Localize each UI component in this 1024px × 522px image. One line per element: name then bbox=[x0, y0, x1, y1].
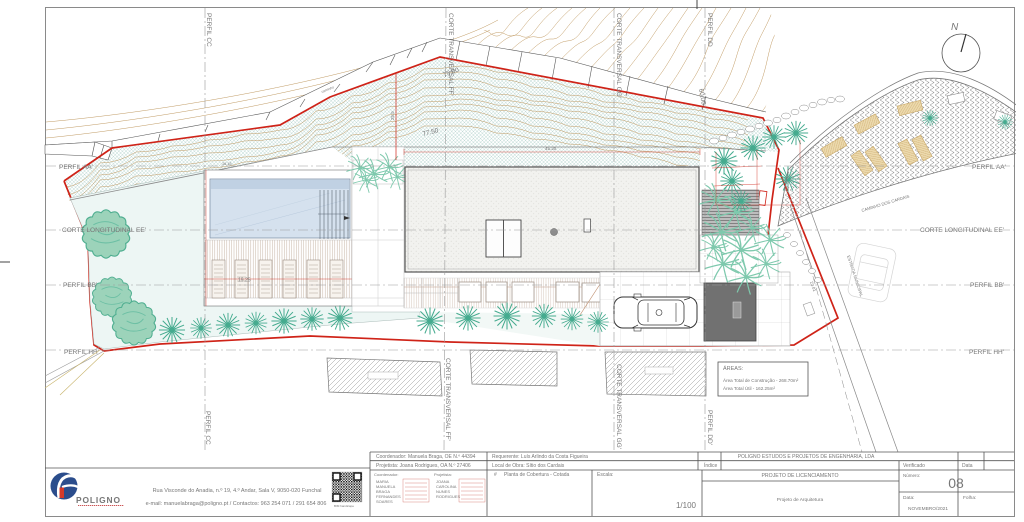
svg-text:NOVEMBRO/2021: NOVEMBRO/2021 bbox=[908, 506, 948, 512]
svg-text:PERFIL DD': PERFIL DD' bbox=[706, 410, 713, 445]
svg-text:RODRIGUES: RODRIGUES bbox=[436, 494, 461, 499]
svg-text:ÁREAS:: ÁREAS: bbox=[723, 365, 744, 372]
svg-text:PERFIL BB': PERFIL BB' bbox=[63, 282, 97, 289]
svg-text:PERFIL AA': PERFIL AA' bbox=[59, 164, 93, 171]
svg-text:Data:: Data: bbox=[903, 495, 914, 501]
svg-text:Projeto de Arquitetura: Projeto de Arquitetura bbox=[777, 497, 824, 503]
svg-text:POLIGNO: POLIGNO bbox=[76, 495, 121, 505]
svg-text:Área Total de Construção - 268: Área Total de Construção - 268.70m² bbox=[723, 377, 799, 383]
svg-text:Índice: Índice bbox=[704, 462, 718, 469]
svg-text:Projetista:: Projetista: bbox=[434, 472, 452, 477]
svg-text:CORTE LONGITUDINAL EE': CORTE LONGITUDINAL EE' bbox=[62, 227, 146, 234]
svg-text:Planta de Cobertura - Cotada: Planta de Cobertura - Cotada bbox=[504, 472, 570, 478]
svg-text:Número:: Número: bbox=[903, 473, 920, 478]
svg-text:#: # bbox=[494, 472, 497, 478]
svg-text:SOARES: SOARES bbox=[376, 499, 393, 504]
svg-text:Coordenador:: Coordenador: bbox=[374, 472, 398, 477]
svg-text:CORTE TRANSVERSAL FF': CORTE TRANSVERSAL FF' bbox=[444, 358, 451, 441]
svg-text:Verificado: Verificado bbox=[903, 463, 925, 469]
svg-text:Rua Visconde do Anadia, n.º 19: Rua Visconde do Anadia, n.º 19, 4.º Anda… bbox=[153, 487, 322, 494]
svg-text:1/100: 1/100 bbox=[676, 501, 697, 510]
svg-text:CORTE LONGITUDINAL EE': CORTE LONGITUDINAL EE' bbox=[920, 227, 1004, 234]
svg-text:CORTE TRANSVERSAL GG': CORTE TRANSVERSAL GG' bbox=[615, 13, 622, 98]
svg-text:PERFIL BB': PERFIL BB' bbox=[970, 282, 1004, 289]
svg-text:45.30: 45.30 bbox=[545, 146, 557, 151]
svg-text:Data: Data bbox=[962, 463, 973, 469]
svg-text:16.15: 16.15 bbox=[222, 162, 232, 166]
svg-text:Escala:: Escala: bbox=[597, 472, 613, 478]
svg-text:BIM handicape: BIM handicape bbox=[334, 504, 354, 508]
svg-text:PROJETO DE LICENCIAMENTO: PROJETO DE LICENCIAMENTO bbox=[761, 473, 838, 479]
svg-text:Requerente: Luís Arlindo da Co: Requerente: Luís Arlindo da Costa Figuei… bbox=[492, 454, 588, 460]
svg-text:25.5: 25.5 bbox=[390, 111, 395, 120]
svg-text:Local de Obra: Sítio dos Carda: Local de Obra: Sítio dos Cardais bbox=[492, 463, 565, 469]
svg-text:PERFIL CC: PERFIL CC bbox=[204, 411, 211, 445]
svg-text:PERFIL HH': PERFIL HH' bbox=[969, 349, 1004, 356]
svg-text:N: N bbox=[951, 22, 959, 33]
svg-text:POLIGNO ESTUDOS E PROJETOS DE: POLIGNO ESTUDOS E PROJETOS DE ENGENHARIA… bbox=[738, 454, 875, 460]
svg-text:PERFIL DD: PERFIL DD bbox=[706, 13, 713, 47]
svg-text:Folha:: Folha: bbox=[963, 495, 976, 501]
svg-text:CORTE TRANSVERSAL FF': CORTE TRANSVERSAL FF' bbox=[447, 13, 454, 96]
svg-text:Projetista: Joana Rodrigues, O: Projetista: Joana Rodrigues, OA N.º 2740… bbox=[376, 463, 471, 469]
svg-text:Coordenador: Manuela Braga, OE: Coordenador: Manuela Braga, OE N.º 44394 bbox=[376, 454, 476, 460]
svg-text:08: 08 bbox=[948, 475, 964, 491]
svg-text:19.25: 19.25 bbox=[238, 278, 251, 284]
svg-text:PERFIL AA': PERFIL AA' bbox=[972, 164, 1006, 171]
svg-text:PERFIL CC: PERFIL CC bbox=[205, 13, 212, 47]
svg-text:CORTE TRANSVERSAL GG': CORTE TRANSVERSAL GG' bbox=[615, 364, 622, 449]
svg-text:Área Total Útil - 162.25m²: Área Total Útil - 162.25m² bbox=[723, 385, 775, 391]
svg-text:e-mail: manuelabraga@poligno.p: e-mail: manuelabraga@poligno.pt / Contac… bbox=[146, 501, 327, 507]
